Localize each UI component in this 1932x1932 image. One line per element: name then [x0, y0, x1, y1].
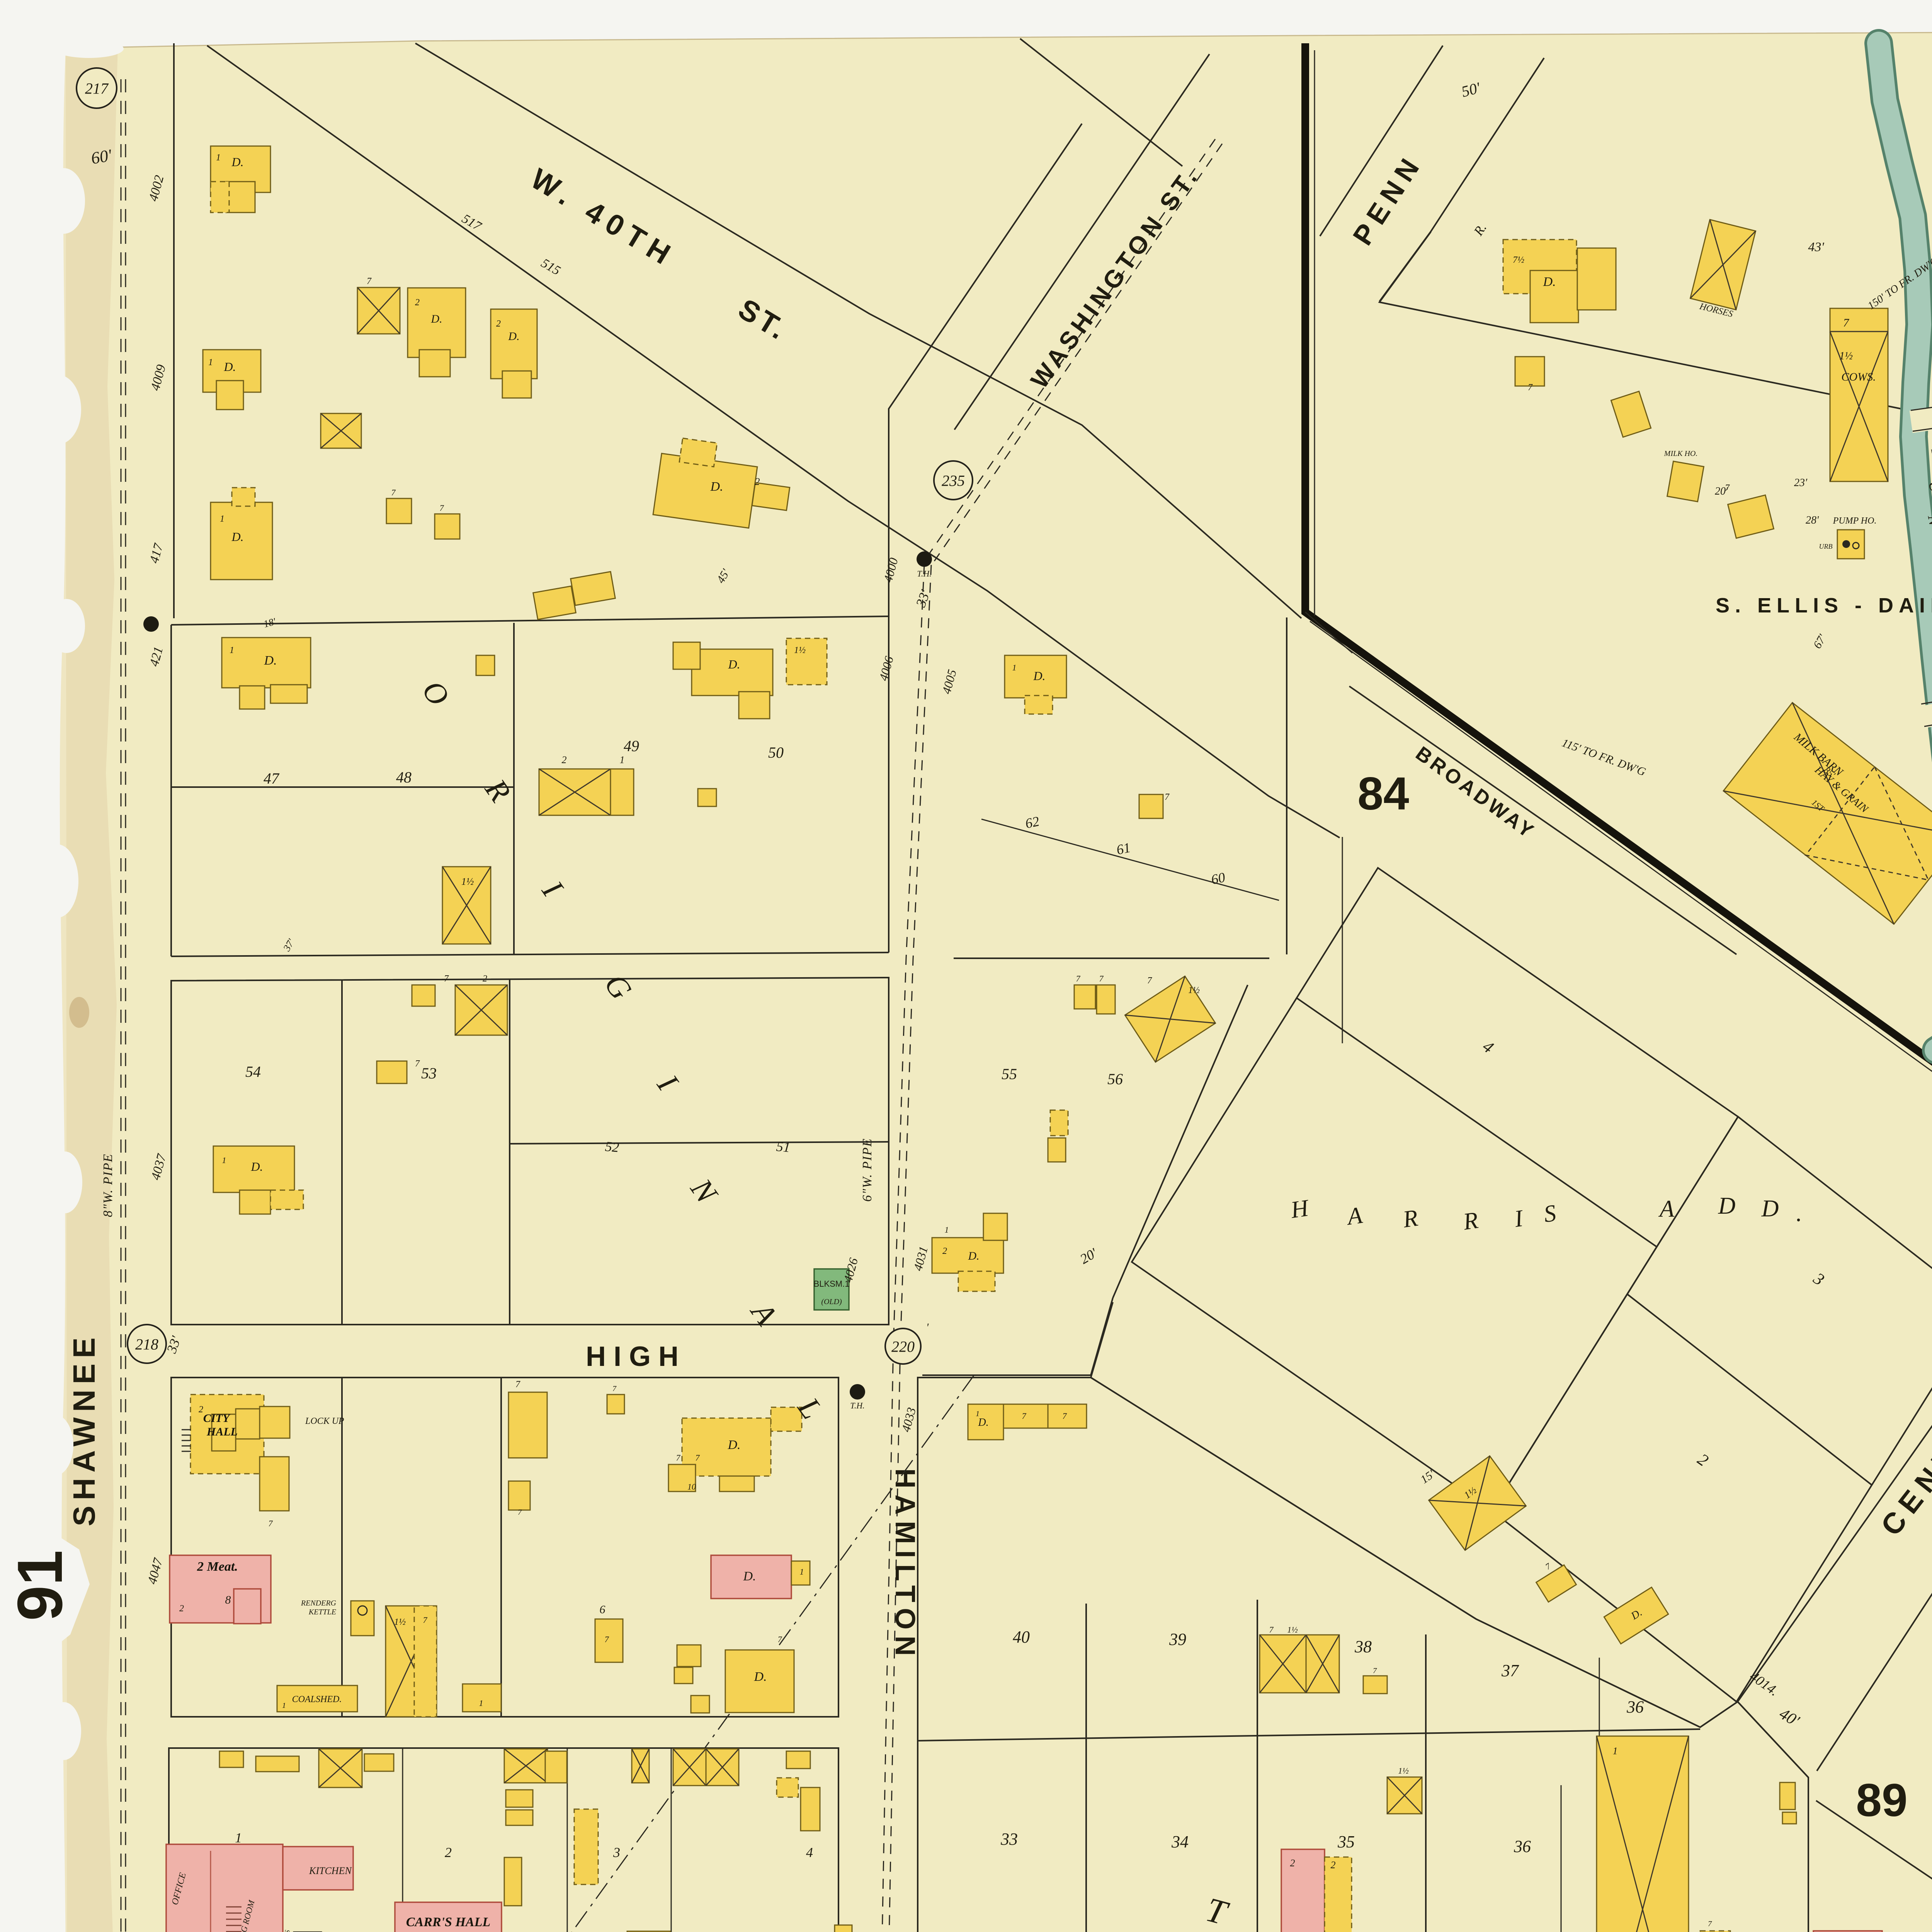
svg-text:7: 7	[1528, 383, 1533, 393]
svg-text:218: 218	[135, 1335, 158, 1353]
svg-text:CITY: CITY	[203, 1412, 231, 1425]
svg-text:D.: D.	[250, 1160, 263, 1173]
svg-text:D.: D.	[508, 330, 519, 343]
svg-text:8: 8	[225, 1594, 231, 1606]
svg-text:39: 39	[1169, 1630, 1186, 1649]
svg-text:2: 2	[415, 298, 420, 308]
svg-text:MILK HO.: MILK HO.	[1664, 449, 1698, 458]
svg-text:1½: 1½	[1287, 1625, 1298, 1634]
svg-text:53: 53	[421, 1065, 437, 1082]
svg-text:D: D	[1761, 1196, 1779, 1222]
svg-text:54: 54	[245, 1063, 261, 1080]
svg-text:7: 7	[518, 1508, 522, 1517]
svg-text:1: 1	[230, 645, 234, 655]
svg-text:D.: D.	[231, 155, 243, 169]
svg-text:60': 60'	[90, 146, 114, 168]
svg-text:1: 1	[620, 754, 625, 765]
svg-text:3: 3	[613, 1845, 620, 1860]
svg-text:1: 1	[216, 153, 221, 163]
svg-text:10: 10	[687, 1482, 696, 1492]
svg-text:56: 56	[1107, 1070, 1123, 1088]
svg-text:7: 7	[423, 1615, 428, 1625]
svg-text:1: 1	[479, 1698, 483, 1708]
svg-text:D.: D.	[1543, 275, 1556, 289]
svg-text:COWS.: COWS.	[1841, 371, 1876, 383]
svg-text:D.: D.	[727, 1438, 740, 1452]
svg-text:T.H.: T.H.	[917, 569, 932, 578]
svg-text:1: 1	[222, 1155, 226, 1165]
svg-text:1: 1	[945, 1225, 949, 1235]
svg-text:KETTLE: KETTLE	[308, 1608, 336, 1616]
svg-text:2: 2	[483, 974, 487, 984]
svg-text:2: 2	[755, 476, 760, 487]
svg-text:7: 7	[1099, 974, 1104, 983]
svg-text:HAMILTON: HAMILTON	[889, 1468, 920, 1662]
svg-text:28': 28'	[1806, 514, 1819, 526]
svg-text:D.: D.	[1033, 669, 1045, 683]
svg-text:2 Meat.: 2 Meat.	[197, 1560, 238, 1574]
svg-text:38: 38	[1354, 1637, 1372, 1656]
svg-text:KITCHEN: KITCHEN	[309, 1865, 352, 1876]
svg-text:1: 1	[800, 1567, 804, 1577]
svg-text:8"W. PIPE: 8"W. PIPE	[101, 1153, 115, 1217]
svg-text:6: 6	[600, 1603, 605, 1616]
svg-text:2: 2	[496, 319, 501, 329]
svg-text:7: 7	[1076, 974, 1081, 983]
svg-text:D.: D.	[978, 1417, 988, 1429]
svg-text:235: 235	[942, 472, 965, 489]
svg-text:1½: 1½	[1188, 985, 1200, 995]
svg-text:D.: D.	[753, 1670, 767, 1684]
svg-text:D.: D.	[264, 653, 277, 668]
svg-text:.: .	[1796, 1200, 1802, 1226]
svg-text:2: 2	[562, 754, 567, 765]
svg-text:89: 89	[1856, 1774, 1907, 1826]
svg-text:34: 34	[1171, 1832, 1189, 1851]
svg-text:7: 7	[1063, 1411, 1067, 1421]
svg-text:7: 7	[444, 974, 449, 984]
svg-text:RENDERG: RENDERG	[301, 1599, 337, 1607]
svg-text:52: 52	[604, 1139, 619, 1155]
svg-text:HALL: HALL	[206, 1425, 238, 1438]
svg-text:43': 43'	[1808, 240, 1824, 254]
svg-text:LOCK UP: LOCK UP	[305, 1416, 344, 1426]
svg-text:2: 2	[942, 1246, 947, 1256]
svg-text:220: 220	[891, 1338, 915, 1355]
svg-text:2: 2	[199, 1405, 203, 1415]
svg-text:40: 40	[1013, 1628, 1030, 1646]
svg-text:1½: 1½	[394, 1617, 406, 1627]
svg-text:1: 1	[235, 1830, 242, 1845]
svg-text:23′: 23′	[1794, 477, 1808, 489]
svg-text:7: 7	[612, 1384, 617, 1393]
svg-text:PUMP HO.: PUMP HO.	[1833, 516, 1877, 526]
svg-text:7: 7	[1147, 976, 1152, 986]
svg-text:CARR'S HALL: CARR'S HALL	[406, 1915, 490, 1929]
svg-text:49: 49	[624, 737, 639, 755]
svg-text:1: 1	[208, 357, 213, 367]
svg-text:7: 7	[1373, 1667, 1377, 1675]
svg-text:50: 50	[768, 744, 784, 761]
svg-text:47: 47	[264, 770, 280, 787]
svg-text:35: 35	[1337, 1832, 1355, 1851]
svg-text:36: 36	[1626, 1697, 1644, 1716]
svg-text:D: D	[1718, 1193, 1736, 1219]
svg-text:S. ELLIS - DAIRY FARM: S. ELLIS - DAIRY FARM	[1716, 594, 1932, 617]
svg-text:4: 4	[806, 1845, 813, 1860]
svg-text:51: 51	[776, 1139, 791, 1155]
svg-text:7: 7	[1165, 792, 1170, 802]
svg-text:1: 1	[282, 1701, 286, 1710]
svg-text:2: 2	[1290, 1857, 1295, 1869]
svg-text:91: 91	[4, 1550, 75, 1621]
svg-text:T.H.: T.H.	[850, 1401, 865, 1410]
svg-text:1: 1	[1613, 1745, 1618, 1757]
svg-text:7: 7	[1843, 316, 1850, 329]
svg-text:36: 36	[1514, 1837, 1531, 1856]
svg-text:D.: D.	[728, 657, 740, 671]
svg-text:2: 2	[179, 1604, 184, 1614]
svg-text:1½: 1½	[461, 876, 474, 887]
svg-text:D.: D.	[430, 313, 442, 325]
svg-text:': '	[926, 1321, 929, 1334]
svg-text:7: 7	[605, 1634, 609, 1644]
svg-text:7: 7	[440, 503, 444, 513]
svg-text:7: 7	[1708, 1920, 1712, 1928]
svg-text:D.: D.	[231, 530, 243, 544]
svg-text:D.: D.	[223, 360, 236, 374]
svg-text:55: 55	[1002, 1065, 1017, 1083]
svg-text:SHAWNEE: SHAWNEE	[67, 1332, 101, 1527]
svg-text:D.: D.	[710, 480, 723, 494]
svg-text:20': 20'	[1715, 485, 1728, 497]
svg-text:217: 217	[85, 80, 109, 97]
svg-text:HIGH: HIGH	[586, 1341, 686, 1372]
svg-text:1½: 1½	[1398, 1766, 1409, 1776]
svg-text:2: 2	[445, 1845, 452, 1860]
svg-text:84: 84	[1357, 768, 1409, 820]
svg-text:2: 2	[1331, 1859, 1336, 1871]
svg-text:7: 7	[676, 1453, 681, 1463]
svg-text:7½: 7½	[1513, 255, 1524, 265]
svg-text:A: A	[1658, 1196, 1675, 1222]
svg-text:7: 7	[367, 276, 372, 286]
svg-text:D.: D.	[743, 1569, 756, 1583]
svg-text:7: 7	[696, 1453, 700, 1463]
svg-text:1½: 1½	[794, 645, 806, 655]
svg-text:D.: D.	[968, 1250, 979, 1262]
svg-text:37: 37	[1501, 1661, 1519, 1680]
svg-text:COALSHED.: COALSHED.	[292, 1694, 342, 1704]
svg-text:6"W. PIPE: 6"W. PIPE	[860, 1138, 874, 1202]
svg-text:1: 1	[1012, 663, 1017, 672]
svg-text:7: 7	[1269, 1625, 1274, 1634]
svg-text:7: 7	[1022, 1411, 1027, 1421]
svg-text:7: 7	[269, 1519, 273, 1528]
svg-text:33: 33	[1000, 1830, 1018, 1849]
svg-text:7: 7	[391, 488, 396, 497]
svg-text:1: 1	[976, 1410, 980, 1418]
svg-text:7: 7	[415, 1059, 420, 1069]
svg-text:URB: URB	[1819, 543, 1833, 550]
svg-text:(OLD): (OLD)	[821, 1298, 842, 1306]
svg-text:7: 7	[515, 1379, 520, 1389]
svg-text:7: 7	[778, 1634, 782, 1644]
svg-text:48: 48	[396, 769, 412, 786]
svg-text:1: 1	[220, 514, 224, 524]
svg-text:1½: 1½	[1839, 350, 1853, 362]
